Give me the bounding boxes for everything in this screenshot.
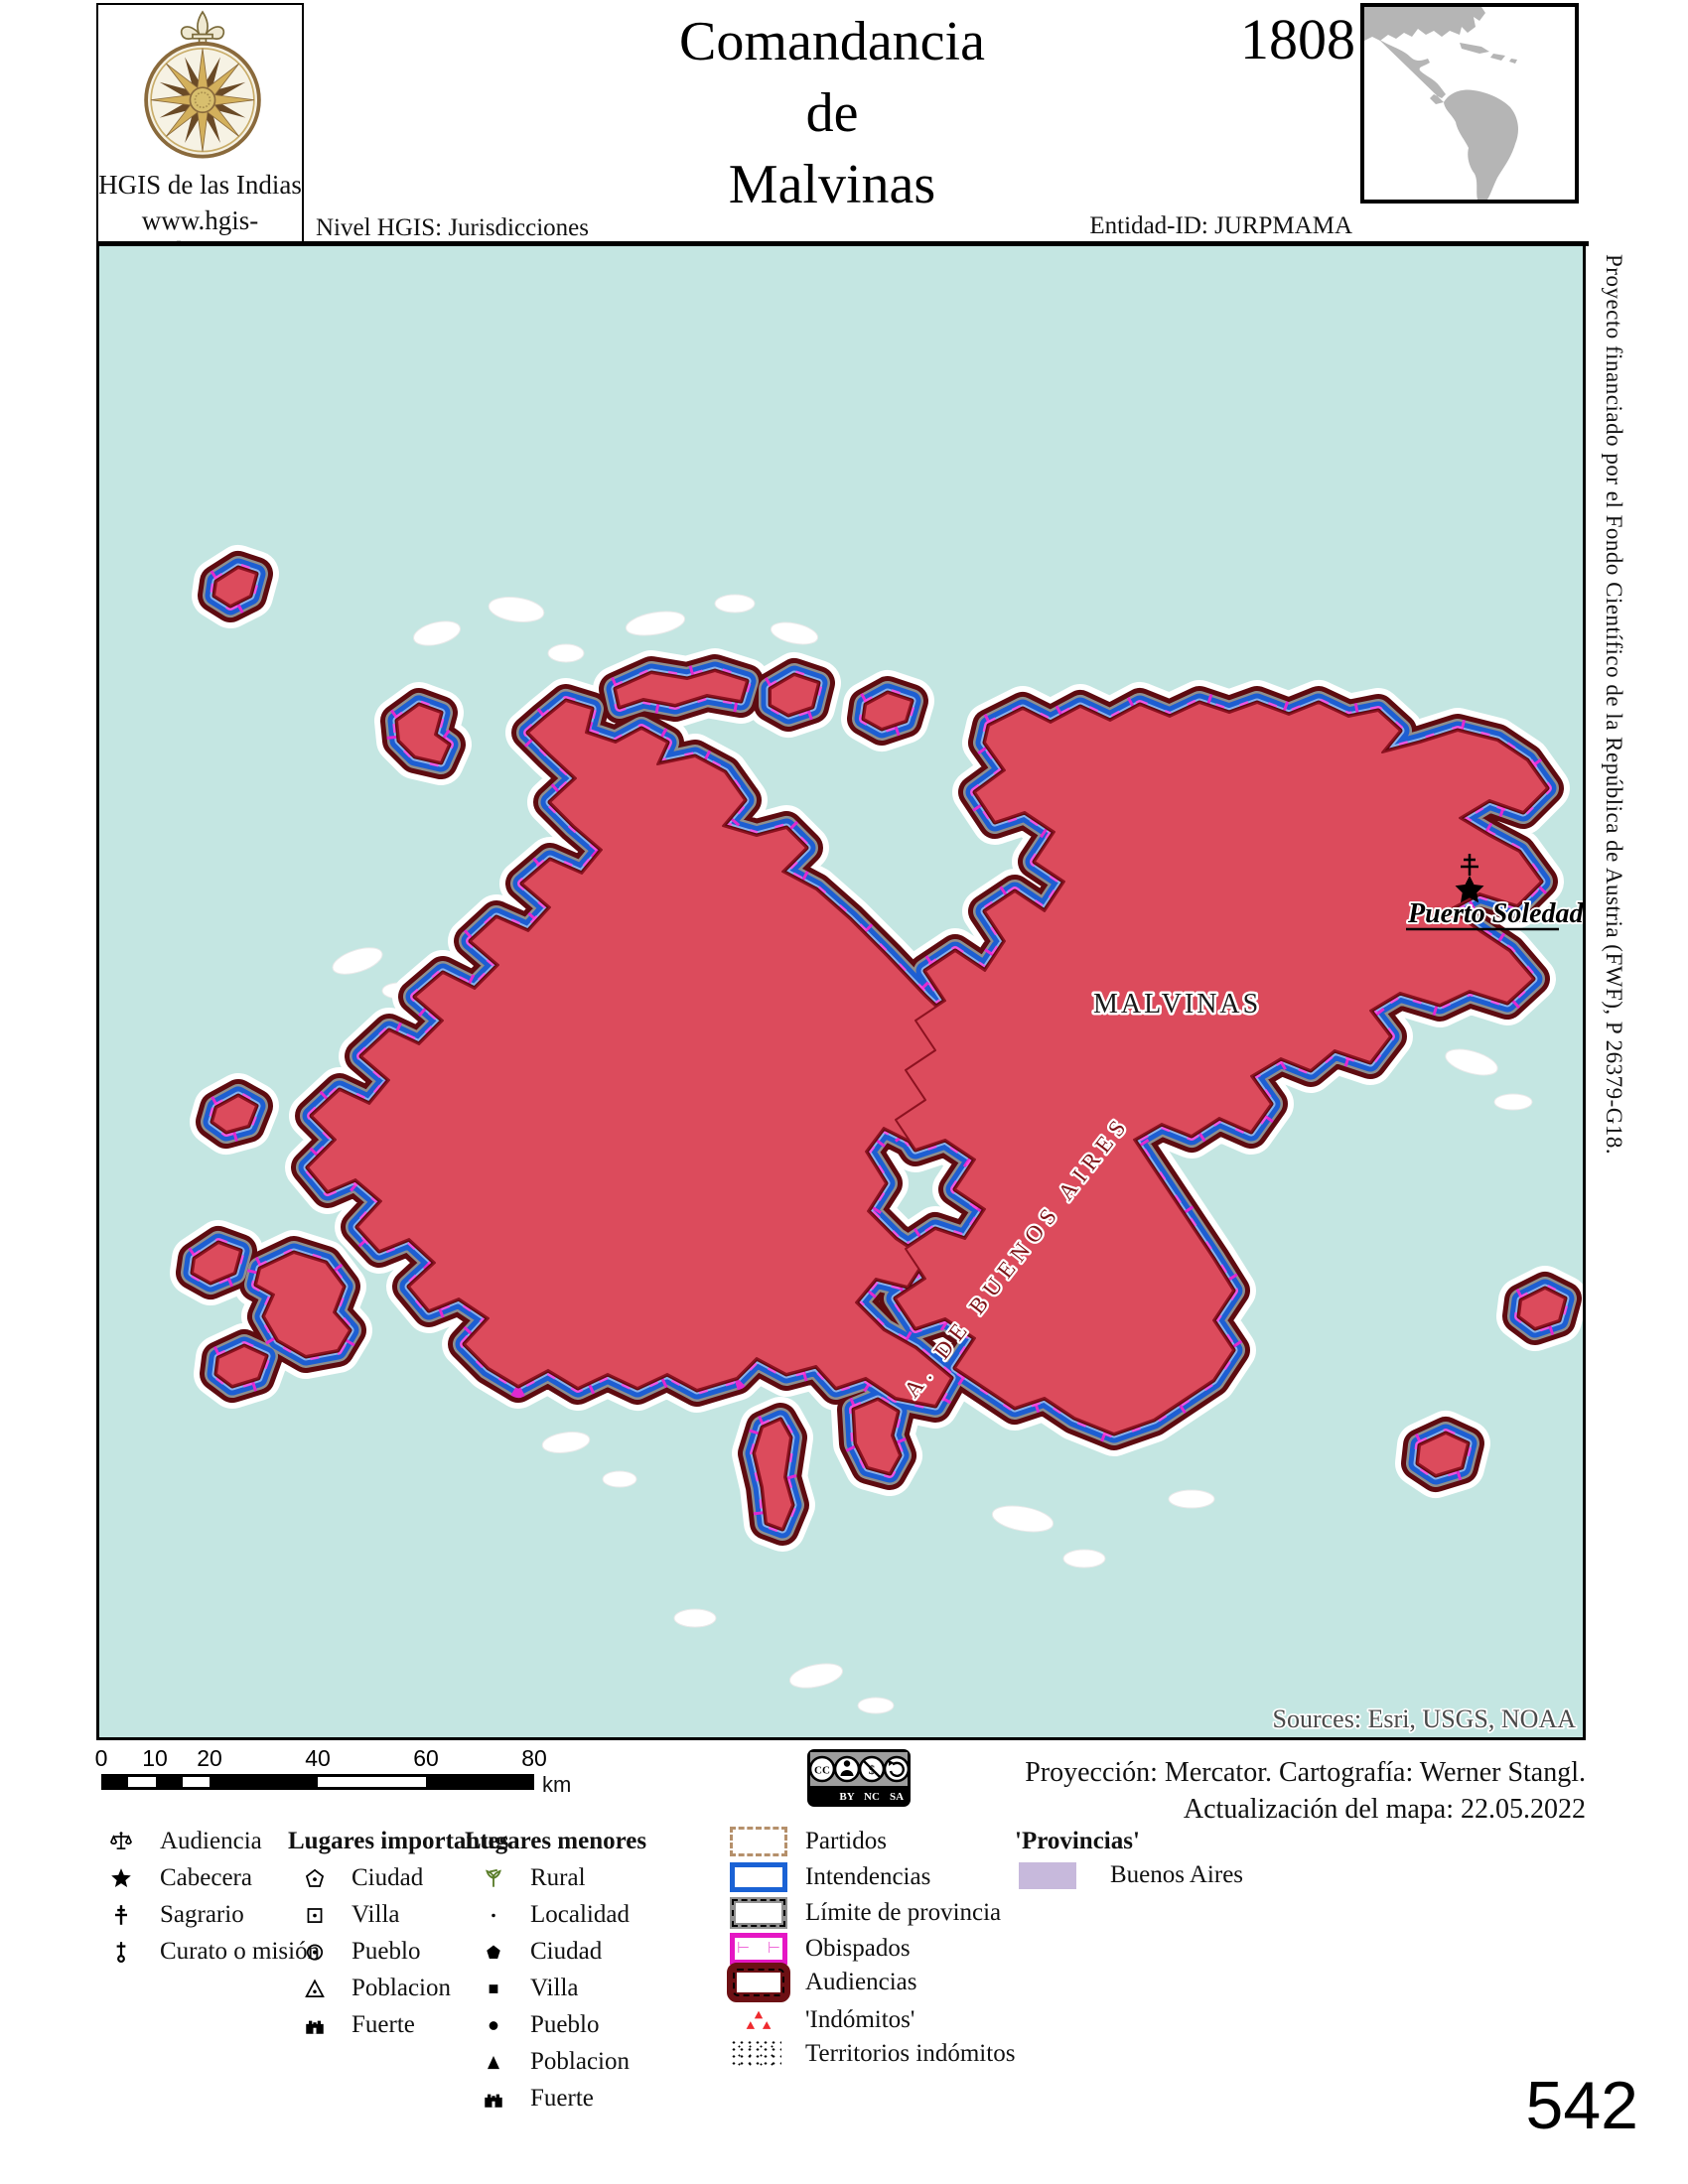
page-number: 542 [1430,2067,1638,2144]
scale-tick: 80 [504,1745,564,1772]
scales-icon [104,1830,138,1853]
legend-row: Poblacion [298,1972,451,2005]
limite-provincia-swatch [730,1897,787,1929]
territory-label: MALVINAS [1093,989,1261,1020]
legend-label: Localidad [530,1901,630,1929]
scale-bar-rule [101,1774,534,1790]
legend-row: Localidad [477,1898,630,1932]
mission-cross-icon [104,1940,138,1964]
legend-row: Fuerte [298,2008,415,2042]
patriarchal-cross-icon [104,1903,138,1927]
circle-filled-icon [477,2013,510,2037]
legend-row: Ciudad [477,1935,602,1969]
square-outline-icon [298,1903,332,1927]
map-year: 1808 [1216,6,1355,72]
legend-label: Ciudad [352,1864,423,1892]
basemap-sources-label: Sources: Esri, USGS, NOAA [1273,1705,1577,1733]
legend-label: Ciudad [530,1938,602,1966]
americas-silhouette [1364,7,1575,200]
triangle-outline-icon [298,1977,332,2000]
scale-tick: 40 [288,1745,348,1772]
legend-label: Curato o misión [160,1938,320,1966]
update-date: Actualización del mapa: 22.05.2022 [692,1794,1586,1826]
legend-label: Poblacion [352,1975,451,2002]
pentagon-outline-icon [298,1866,332,1890]
scale-unit-label: km [542,1772,571,1798]
legend-label: Obispados [805,1935,911,1963]
legend-row-indomitos: 'Indómitos' [730,2003,914,2037]
legend-row: Fuerte [477,2082,594,2116]
legend-row-cabecera: Cabecera [104,1861,252,1895]
map-canvas: Puerto Soledad MALVINAS A. DE BUENOS AIR… [96,243,1586,1740]
scale-tick: 20 [180,1745,239,1772]
obispados-swatch: ⊢⊢ [730,1933,787,1965]
locator-inset-map [1360,3,1579,204]
legend-row: Villa [298,1898,400,1932]
small-dot-icon [477,1903,510,1927]
legend-label: Fuerte [352,2011,415,2039]
site-name: HGIS de las Indias [98,170,302,201]
title-line-1: Comandancia [304,6,1360,77]
pentagon-filled-icon [477,1940,510,1964]
legend-label: Audiencias [805,1969,916,1996]
legend-label: Villa [530,1975,579,2002]
plant-icon [477,1866,510,1890]
legend-row-sagrario: Sagrario [104,1898,244,1932]
malvinas-map: Puerto Soledad MALVINAS A. DE BUENOS AIR… [99,246,1583,1737]
legend-label: Rural [530,1864,586,1892]
square-filled-icon [477,1977,510,2000]
legend-row: Ciudad [298,1861,423,1895]
star-icon [104,1866,138,1890]
legend-label: Pueblo [530,2011,599,2039]
territorios-indomitos-swatch [730,2039,781,2069]
legend-row-intendencias: Intendencias [730,1860,930,1894]
indomitos-triangles-icon [730,2008,787,2032]
legend-row: Pueblo [477,2008,599,2042]
legend-row: Pueblo [298,1935,420,1969]
legend-label: Villa [352,1901,400,1929]
funding-note: Proyecto financiado por el Fondo Científ… [1601,254,1626,1485]
circle-outline-icon [298,1940,332,1964]
legend-label: Sagrario [160,1901,244,1929]
legend-label: Cabecera [160,1864,252,1892]
compass-rose-logo [136,7,269,170]
legend-row-audiencia: Audiencia [104,1825,262,1858]
scale-tick: 10 [125,1745,185,1772]
legend-row-audiencias: Audiencias [727,1966,916,1999]
legend-row: Rural [477,1861,586,1895]
legend-label: Buenos Aires [1110,1861,1243,1889]
legend-row-obispados: ⊢⊢ Obispados [730,1932,911,1966]
legend-label: Poblacion [530,2048,630,2076]
legend-label: Fuerte [530,2085,594,2113]
partidos-swatch [730,1827,787,1856]
legend-label: Partidos [805,1828,887,1855]
legend-label: Pueblo [352,1938,420,1966]
legend-row-curato: Curato o misión [104,1935,320,1969]
projection-credit: Proyección: Mercator. Cartografía: Werne… [692,1757,1586,1789]
legend-label: 'Indómitos' [805,2006,914,2034]
title-line-2: de [304,77,1360,149]
legend-row-territorios: Territorios indómitos [730,2037,1015,2071]
legend-row-limite: Límite de provincia [730,1896,1001,1930]
legend-row-partidos: Partidos [730,1825,887,1858]
legend-row: Villa [477,1972,579,2005]
page-title: Comandancia de Malvinas [304,6,1360,220]
castle-icon [298,2013,332,2037]
scale-tick: 60 [396,1745,456,1772]
legend-header-provinces: 'Provincias' [1015,1828,1140,1855]
scale-bar: 0 10 20 40 60 80 km [98,1745,595,1801]
settlement-label: Puerto Soledad [1407,898,1583,929]
entity-id-label: Entidad-ID: JURPMAMA [0,212,1352,240]
legend-label: Intendencias [805,1863,930,1891]
logo-box: HGIS de las Indias www.hgis-indias.net [96,3,304,243]
legend-row-buenos-aires: Buenos Aires [1019,1858,1243,1892]
legend-row: Poblacion [477,2045,630,2079]
legend-header-minor: Lugares menores [465,1828,646,1855]
title-line-3: Malvinas [304,149,1360,220]
legend-label: Audiencia [160,1828,262,1855]
legend-label: Territorios indómitos [805,2040,1015,2068]
legend-label: Límite de provincia [805,1899,1001,1927]
scale-tick: 0 [71,1745,131,1772]
intendencias-swatch [730,1862,787,1892]
buenos-aires-swatch [1019,1862,1076,1889]
triangle-filled-icon [477,2050,510,2074]
audiencias-swatch [727,1963,790,2002]
map-sheet: HGIS de las Indias www.hgis-indias.net C… [0,0,1688,2184]
castle-icon [477,2087,510,2111]
